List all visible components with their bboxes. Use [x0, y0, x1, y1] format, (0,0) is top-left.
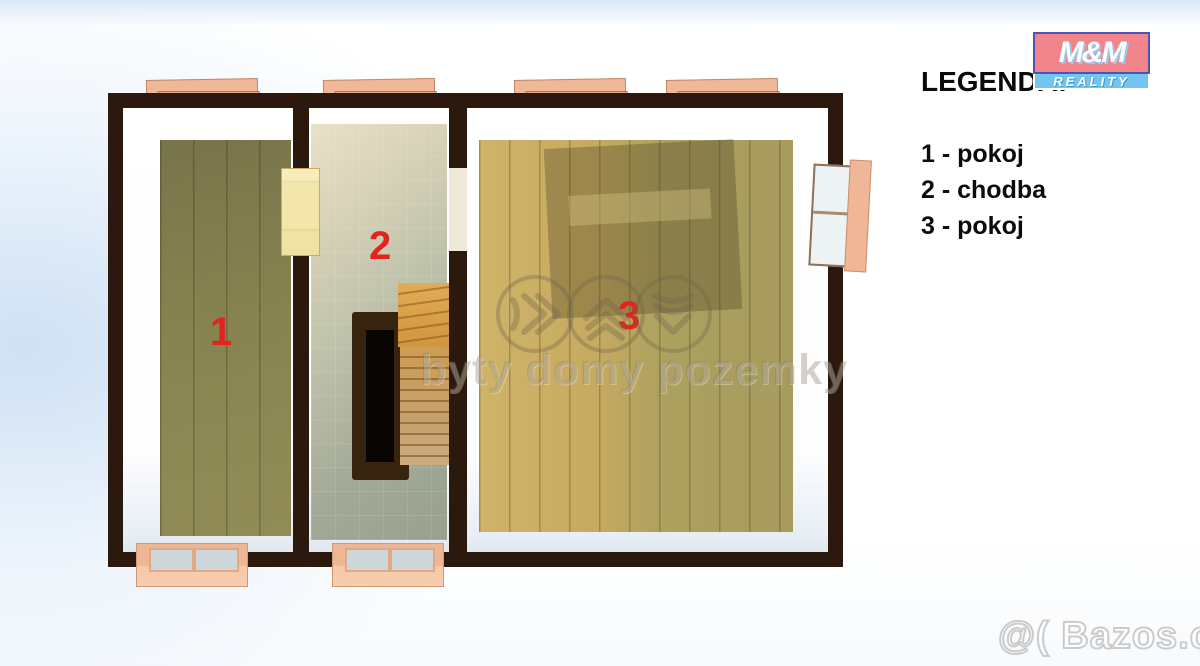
center-watermark-text: byty domy pozemky — [420, 346, 786, 395]
chevrons-right-icon — [513, 296, 558, 332]
legend-item-3: 3 - pokoj — [921, 208, 1067, 244]
chevrons-down-icon — [655, 296, 691, 332]
logo-reality-text: REALITY — [1033, 74, 1150, 90]
chevrons-up-icon — [586, 300, 626, 338]
window-glass — [345, 548, 435, 572]
window-glass — [149, 548, 239, 572]
doorway-room2-room3 — [449, 168, 467, 251]
stairwell-void-opening — [366, 330, 394, 462]
window-mullion — [813, 211, 849, 216]
outer-wall-left — [108, 93, 123, 567]
legend-items: 1 - pokoj 2 - chodba 3 - pokoj — [921, 136, 1067, 244]
hallway-cabinet — [281, 168, 320, 256]
legend: LEGENDA: 1 - pokoj 2 - chodba 3 - pokoj — [921, 66, 1067, 244]
floorplan-screenshot: 1 2 3 byty domy pozemky — [0, 0, 1200, 666]
room1-number-label: 1 — [210, 312, 232, 352]
window-right-room3 — [808, 158, 872, 273]
window-mullion — [388, 550, 392, 570]
logo-mm-text: M&M — [1033, 32, 1150, 74]
outer-wall-top — [108, 93, 843, 108]
legend-item-2: 2 - chodba — [921, 172, 1067, 208]
window-bottom-room1 — [136, 543, 248, 587]
legend-item-1: 1 - pokoj — [921, 136, 1067, 172]
mm-reality-logo: M&M REALITY — [1033, 32, 1150, 90]
wall-room2-room3-upper — [449, 108, 467, 168]
room2-number-label: 2 — [369, 226, 391, 266]
window-shadow-light-band — [568, 188, 711, 225]
wall-room2-room3-lower — [449, 251, 467, 552]
window-bottom-room2 — [332, 543, 444, 587]
window-mullion — [192, 550, 196, 570]
bazos-watermark: @( Bazos.cz — [998, 615, 1200, 658]
